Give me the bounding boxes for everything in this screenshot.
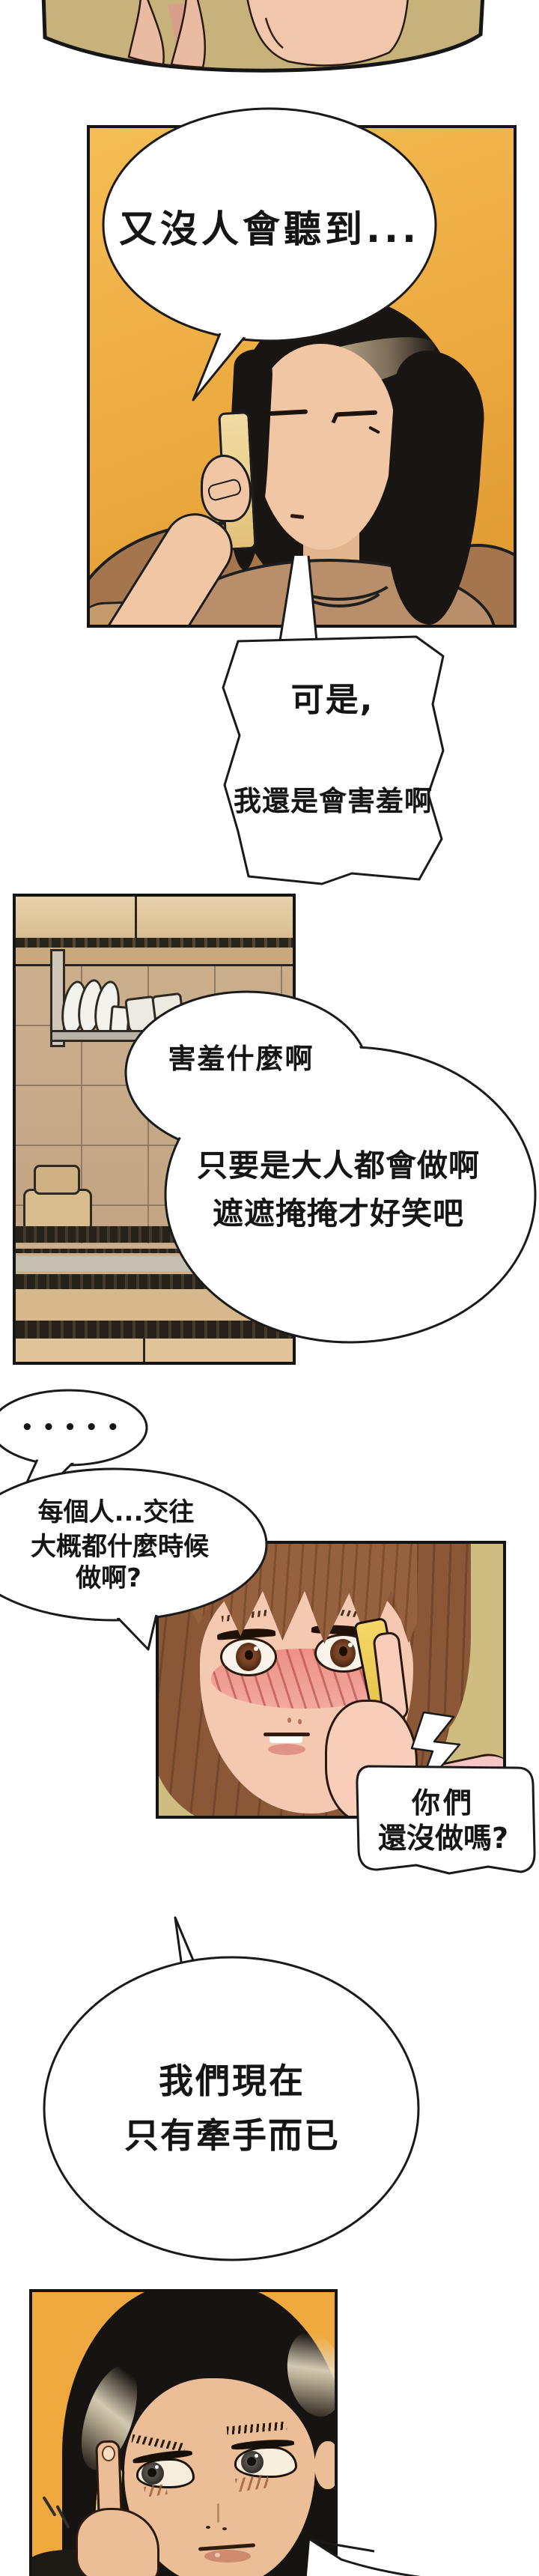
counter-tan-band	[16, 1289, 293, 1321]
dialogue-b7-line2: 只有牽手而已	[71, 2117, 393, 2156]
cheek-shape	[247, 0, 408, 65]
dishrack-shelf	[50, 1030, 192, 1042]
panel-livingroom-phonecall	[87, 125, 517, 628]
counter-stripe-thin	[16, 1249, 293, 1253]
ear	[312, 2439, 338, 2491]
eye-glint	[348, 1643, 353, 1647]
speech-bubble-b7-tail	[175, 1918, 195, 1967]
pupil	[247, 2457, 256, 2466]
collar-line	[286, 540, 392, 607]
eye-left	[220, 1637, 277, 1676]
speech-bubble-b2	[223, 637, 443, 884]
speech-bubble-b5-tail	[109, 1598, 160, 1649]
eye-glint	[254, 1646, 258, 1651]
dialogue-b7-line1: 我們現在	[71, 2062, 393, 2101]
nostril	[222, 2527, 227, 2530]
teeth	[269, 1736, 302, 1743]
pupil	[339, 1646, 347, 1656]
nostril	[298, 1719, 302, 1724]
lower-lip	[204, 2550, 251, 2563]
nose-line	[217, 2503, 219, 2523]
eye-glint	[255, 2454, 258, 2458]
wall-cabinet	[16, 897, 293, 941]
lower-cabinet-divider	[143, 1339, 145, 1362]
counter-gray-band	[16, 1256, 293, 1271]
eye-glint	[155, 2465, 159, 2469]
dialogue-b3-line1: 害羞什麼啊	[140, 1043, 342, 1074]
motion-line	[42, 2496, 56, 2517]
counter-stripe	[16, 1321, 293, 1339]
pupil	[245, 1650, 253, 1660]
cabinet-underside-strip	[16, 938, 293, 948]
nostril	[287, 1718, 291, 1723]
counter-stripe	[16, 1274, 293, 1289]
dialogue-b1: 又沒人會聽到...	[112, 208, 427, 250]
dialogue-b3-line2: 只要是大人都會做啊	[174, 1149, 503, 1184]
panel-closeup-glance	[29, 2289, 338, 2576]
finger-shadow-shape	[168, 3, 199, 67]
lower-lip	[268, 1744, 305, 1755]
hair-strand-right	[417, 1541, 471, 1733]
cropped-panel-shape	[43, 0, 483, 70]
top-partial-panel	[0, 0, 539, 90]
dialogue-b4-dots: •••••	[21, 1417, 126, 1439]
dialogue-b5-line2: 大概都什麼時候	[0, 1533, 240, 1561]
dialogue-b5-line1: 每個人...交往	[0, 1498, 232, 1527]
dialogue-b2-line2: 我還是會害羞啊	[210, 786, 457, 816]
dialogue-b2-line1: 可是,	[220, 682, 445, 718]
lower-cabinet	[16, 1339, 293, 1362]
dialogue-b6-line1: 你們	[353, 1787, 533, 1819]
lip-glint	[215, 2553, 220, 2557]
dialogue-b6-line2: 還沒做嗎?	[353, 1822, 533, 1855]
speech-bubble-b8-partial	[305, 2539, 524, 2576]
dialogue-b5-line3: 做啊?	[0, 1564, 217, 1592]
finger-shape	[129, 0, 164, 64]
cabinet-divider	[135, 897, 137, 939]
dialogue-b3-line3: 遮遮掩掩才好笑吧	[174, 1197, 503, 1231]
fingernail	[102, 2446, 115, 2461]
crease-line	[266, 18, 283, 48]
pupil	[147, 2468, 156, 2477]
speech-bubble-b7	[44, 1957, 418, 2260]
nostril	[206, 2526, 210, 2529]
panel-kitchen	[13, 894, 296, 1365]
cup	[151, 992, 186, 1034]
eye-right	[234, 2446, 297, 2478]
comic-page: 又沒人會聽到... 可是, 我還是會害羞啊 害羞什麼啊 只要是大人都會做啊 遮遮…	[0, 0, 539, 2576]
finger-shape	[171, 0, 205, 67]
bottle-small	[34, 1165, 80, 1195]
